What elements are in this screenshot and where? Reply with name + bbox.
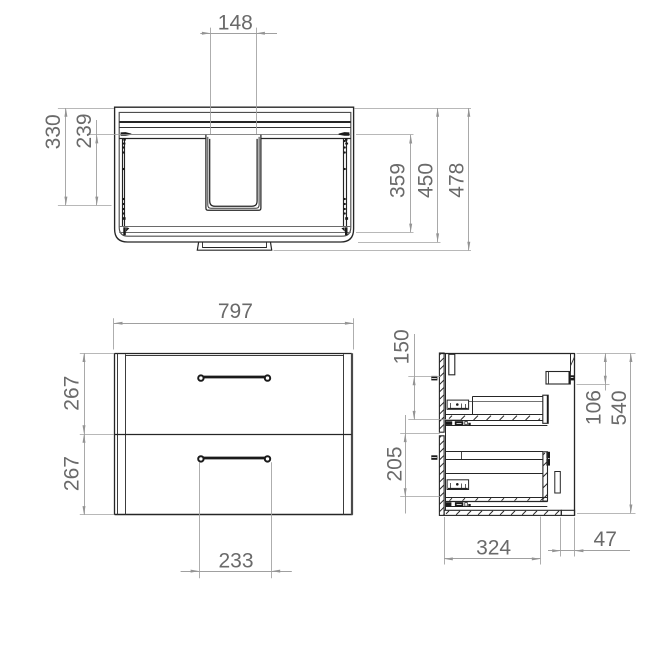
svg-text:148: 148 xyxy=(218,11,253,34)
svg-text:233: 233 xyxy=(218,550,253,573)
svg-text:106: 106 xyxy=(582,390,605,425)
svg-text:450: 450 xyxy=(414,163,437,198)
svg-text:150: 150 xyxy=(391,329,414,364)
svg-text:359: 359 xyxy=(386,163,409,198)
svg-text:47: 47 xyxy=(594,528,617,551)
svg-text:239: 239 xyxy=(73,113,96,148)
svg-text:324: 324 xyxy=(476,536,511,559)
svg-text:540: 540 xyxy=(608,390,631,425)
svg-text:478: 478 xyxy=(445,163,468,198)
svg-text:205: 205 xyxy=(383,446,406,481)
svg-text:330: 330 xyxy=(42,114,65,149)
svg-text:797: 797 xyxy=(218,300,253,323)
svg-text:267: 267 xyxy=(61,376,84,411)
svg-text:267: 267 xyxy=(61,456,84,491)
